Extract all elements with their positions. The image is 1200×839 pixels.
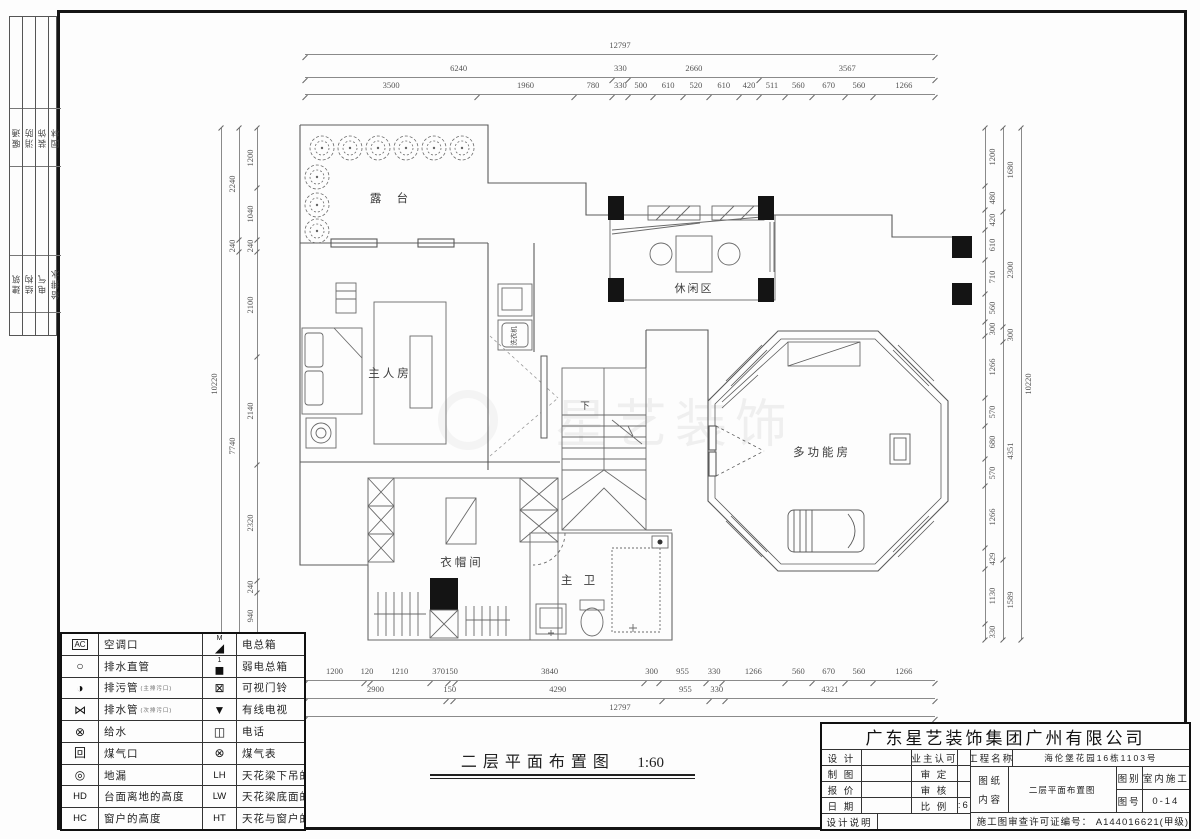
title-underline	[430, 774, 695, 779]
dim-label: 1040	[245, 206, 255, 223]
room-label-master: 主人房	[368, 367, 412, 380]
master-bedroom: 主人房	[302, 283, 446, 448]
sign-label: 装饰	[36, 127, 48, 148]
laundry-nook: 洗衣机	[498, 284, 532, 350]
dim-chain-top-detail: 3500196078033050061052061042051156067056…	[305, 82, 935, 96]
legend-label: 天花与窗户的高度	[236, 808, 304, 829]
drawing-title: 二层平面布置图 1:60	[430, 748, 695, 779]
legend-label: 排水直管	[98, 656, 202, 677]
sheet-content-value: 二层平面布置图	[1009, 767, 1117, 812]
sign-label: 消防	[23, 127, 35, 148]
dim-label: 330	[710, 684, 723, 694]
legend-label: 电话	[236, 721, 304, 742]
scale-label: 比 例	[912, 798, 958, 813]
cloakroom: 衣帽间	[368, 478, 558, 640]
dim-label: 3500	[383, 80, 400, 90]
dim-label: 4290	[549, 684, 566, 694]
dim-chain-right-inner: 1200480420610710560300126657068057012664…	[978, 128, 992, 640]
dim-chain-left-inner: 12001040240210021402320240940	[250, 128, 264, 640]
legend-symbol: 回	[62, 743, 98, 764]
company-name: 广东星艺装饰集团广州有限公司	[822, 724, 1189, 750]
legend-label: 煤气口	[98, 743, 202, 764]
dim-chain-right-outer: 10220	[1014, 128, 1028, 640]
date-label: 日 期	[822, 798, 862, 813]
dim-label: 330	[614, 80, 627, 90]
dim-label: 4321	[821, 684, 838, 694]
room-label-multi: 多功能房	[793, 445, 851, 459]
legend-label: 弱电总箱	[236, 656, 304, 677]
legend-symbol: AC	[62, 634, 98, 655]
legend-symbol: HT	[202, 808, 236, 829]
dim-label: 2900	[367, 684, 384, 694]
dim-label: 12797	[609, 702, 630, 712]
room-label-cloak: 衣帽间	[440, 555, 484, 569]
approve-label: 审 定	[912, 766, 958, 781]
legend-row: ○排水直管1◼弱电总箱	[62, 655, 304, 677]
sign-label: 电气	[36, 273, 48, 294]
design-note-label: 设计说明	[822, 814, 878, 829]
signature-column: 园林 给排水	[49, 17, 61, 335]
design-value	[862, 750, 912, 765]
check-label: 审 核	[912, 782, 958, 797]
sign-label: 暖通	[10, 127, 22, 148]
legend-row: ◎地漏LH天花梁下吊的高度	[62, 764, 304, 786]
master-bathroom: 主 卫	[530, 533, 672, 640]
sheet-label-2: 内 容	[978, 792, 1000, 806]
dim-label: 6240	[450, 63, 467, 73]
sheet-label-1: 图 纸	[978, 773, 1000, 787]
draft-label: 制 图	[822, 766, 862, 781]
legend-symbol: ○	[62, 656, 98, 677]
title-block-left: 设 计 业主认可 制 图 审 定 报 价 审 核	[822, 750, 971, 829]
terrace: 露 台	[305, 136, 474, 243]
signature-strip: 暖通 建筑 消防 结构 装饰 电气 园林 给排水	[9, 16, 57, 336]
legend-row: HD台面离地的高度LW天花梁底面的宽度	[62, 785, 304, 807]
dim-label: 10220	[209, 373, 219, 394]
legend-symbol: LH	[202, 765, 236, 786]
legend-label: 电总箱	[236, 634, 304, 655]
svg-text:星艺装饰: 星艺装饰	[555, 396, 795, 454]
legend-row: 回煤气口⊗煤气表	[62, 742, 304, 764]
dim-label: 520	[690, 80, 703, 90]
legend-label: 窗户的高度	[98, 808, 202, 829]
legend-label: 煤气表	[236, 743, 304, 764]
legend-row: ⋈排水管(次排污口)▼有线电视	[62, 698, 304, 720]
sheet-no-label: 图号	[1117, 790, 1143, 812]
legend-symbol: ⊠	[202, 678, 236, 699]
leisure-area: 休闲区	[608, 196, 972, 305]
dim-label: 240	[245, 581, 255, 594]
dim-label: 150	[443, 684, 456, 694]
drawing-sheet: 暖通 建筑 消防 结构 装饰 电气 园林 给排水 12797 6240	[0, 0, 1200, 839]
quote-label: 报 价	[822, 782, 862, 797]
owner-label: 业主认可	[912, 750, 958, 765]
legend-symbol: LW	[202, 786, 236, 807]
signature-column: 装饰 电气	[36, 17, 49, 335]
dim-label: 610	[662, 80, 675, 90]
dim-label: 560	[853, 80, 866, 90]
sign-label: 园林	[49, 127, 61, 148]
owner-value	[958, 750, 970, 765]
legend-table: AC空调口M◢电总箱○排水直管1◼弱电总箱◑排污管(主排污口)⊠可视门铃⋈排水管…	[60, 632, 306, 831]
category-label: 图别	[1117, 767, 1143, 789]
signature-column: 消防 结构	[23, 17, 36, 335]
dim-label: 500	[634, 80, 647, 90]
dim-label: 670	[822, 80, 835, 90]
title-block-right: 工程名称 海伦堡花园16栋1103号 图 纸 内 容 二层平面布置图 图别 室内…	[971, 750, 1189, 829]
dim-label: 420	[743, 80, 756, 90]
legend-row: HC窗户的高度HT天花与窗户的高度	[62, 807, 304, 829]
title-block: 广东星艺装饰集团广州有限公司 设 计 业主认可 制 图 审 定 报 价	[820, 722, 1191, 831]
dim-label: 3567	[839, 63, 856, 73]
corridor-door	[490, 336, 558, 456]
legend-symbol: M◢	[202, 634, 236, 655]
dim-label: 2240	[227, 176, 237, 193]
dim-label: 240	[227, 240, 237, 253]
dim-label: 1266	[895, 80, 912, 90]
dim-label: 12797	[609, 40, 630, 50]
washer-label: 洗衣机	[509, 326, 518, 346]
watermark: 星艺装饰	[442, 394, 795, 454]
category-value: 室内施工	[1143, 767, 1189, 789]
scale-value: 1:60	[958, 798, 970, 813]
legend-row: ⊗给水◫电话	[62, 720, 304, 742]
legend-label: 空调口	[98, 634, 202, 655]
sheet-no-value: 0-14	[1143, 790, 1189, 812]
dim-chain-left-outer: 10220	[214, 128, 228, 640]
dim-chain-bottom-total: 12797	[305, 704, 935, 718]
legend-symbol: ⊗	[62, 721, 98, 742]
dim-chain-top-mid: 624033026603567	[305, 65, 935, 79]
legend-symbol: 1◼	[202, 656, 236, 677]
room-label-leisure: 休闲区	[675, 281, 714, 295]
dim-chain-left-mid: 22402407740	[232, 128, 246, 640]
signature-column: 暖通 建筑	[10, 17, 23, 335]
dim-label: 1200	[245, 150, 255, 167]
legend-label: 天花梁底面的宽度	[236, 786, 304, 807]
license-number: 施工图审查许可证编号： A144016621(甲级)	[971, 813, 1189, 829]
legend-label: 可视门铃	[236, 678, 304, 699]
dim-chain-bottom-mid: 290015042909553304321	[305, 686, 935, 700]
legend-symbol: ▼	[202, 699, 236, 720]
dim-chain-right-mid: 1680230030043511589	[996, 128, 1010, 640]
project-label: 工程名称	[971, 750, 1013, 766]
dim-label: 2140	[245, 403, 255, 420]
legend-symbol: ◑	[62, 678, 98, 699]
legend-label: 排污管(主排污口)	[98, 678, 202, 699]
dim-label: 2320	[245, 514, 255, 531]
dim-label: 511	[766, 80, 778, 90]
legend-symbol: ⊗	[202, 743, 236, 764]
legend-symbol: ◎	[62, 765, 98, 786]
dim-label: 2100	[245, 296, 255, 313]
room-label-terrace: 露 台	[370, 191, 414, 205]
legend-symbol: HD	[62, 786, 98, 807]
legend-label: 排水管(次排污口)	[98, 699, 202, 720]
dim-label: 10220	[1023, 373, 1033, 394]
floor-plan: 星艺装饰 露 台	[280, 115, 980, 675]
legend-label: 地漏	[98, 765, 202, 786]
dim-label: 2660	[685, 63, 702, 73]
legend-label: 给水	[98, 721, 202, 742]
legend-label: 天花梁下吊的高度	[236, 765, 304, 786]
dim-label: 955	[679, 684, 692, 694]
dim-label: 610	[717, 80, 730, 90]
legend-row: AC空调口M◢电总箱	[62, 634, 304, 655]
dim-label: 240	[245, 240, 255, 253]
sign-label: 给排水	[49, 268, 61, 300]
dim-chain-top-total: 12797	[305, 42, 935, 56]
room-label-bath: 主 卫	[561, 574, 599, 587]
dim-label: 1960	[517, 80, 534, 90]
project-value: 海伦堡花园16栋1103号	[1013, 750, 1189, 766]
legend-symbol: ◫	[202, 721, 236, 742]
design-label: 设 计	[822, 750, 862, 765]
dim-label: 330	[614, 63, 627, 73]
drawing-title-text: 二层平面布置图	[461, 754, 615, 771]
sign-label: 结构	[23, 273, 35, 294]
legend-symbol: HC	[62, 808, 98, 829]
legend-symbol: ⋈	[62, 699, 98, 720]
legend-row: ◑排污管(主排污口)⊠可视门铃	[62, 677, 304, 699]
sign-label: 建筑	[10, 273, 22, 294]
dim-label: 940	[245, 610, 255, 623]
dim-label: 780	[587, 80, 600, 90]
stairs-down-label: 下	[580, 401, 590, 412]
dim-label: 7740	[227, 438, 237, 455]
dim-label: 560	[792, 80, 805, 90]
legend-label: 有线电视	[236, 699, 304, 720]
drawing-scale: 1:60	[637, 755, 664, 771]
legend-label: 台面离地的高度	[98, 786, 202, 807]
